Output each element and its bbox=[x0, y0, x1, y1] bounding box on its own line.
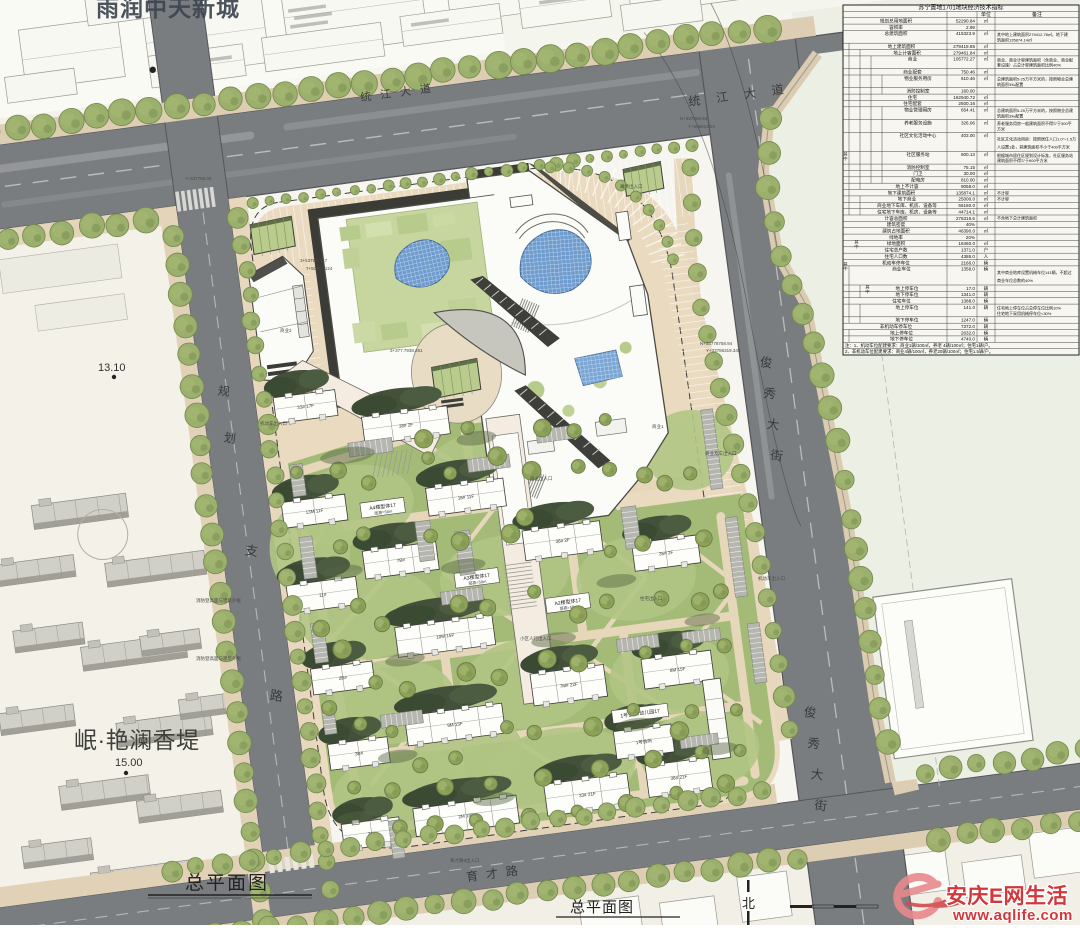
svg-text:18460.0: 18460.0 bbox=[958, 241, 975, 246]
svg-text:路: 路 bbox=[269, 688, 284, 705]
svg-text:住宅配套: 住宅配套 bbox=[903, 100, 922, 107]
svg-text:162940.72: 162940.72 bbox=[953, 95, 975, 100]
svg-text:住宅出入口: 住宅出入口 bbox=[640, 595, 663, 602]
svg-text:辆: 辆 bbox=[984, 323, 989, 330]
svg-text:㎡: ㎡ bbox=[984, 30, 989, 36]
svg-text:40%: 40% bbox=[966, 222, 975, 227]
svg-text:社区文化活动中心: 社区文化活动中心 bbox=[900, 132, 937, 139]
svg-text:㎡: ㎡ bbox=[984, 49, 989, 55]
svg-text:建筑密度: 建筑密度 bbox=[887, 221, 906, 228]
svg-text:消防控制室: 消防控制室 bbox=[907, 164, 930, 171]
svg-text:规: 规 bbox=[217, 383, 231, 399]
svg-text:辆: 辆 bbox=[984, 329, 989, 336]
svg-text:住宅地下采用机械停车位<30%: 住宅地下采用机械停车位<30% bbox=[997, 310, 1052, 316]
svg-text:商业、商业计容建筑面积（含商业、商业配: 商业、商业计容建筑面积（含商业、商业配 bbox=[997, 56, 1073, 62]
svg-text:750.46: 750.46 bbox=[961, 69, 975, 74]
svg-text:9058.0: 9058.0 bbox=[961, 184, 975, 189]
svg-text:其中: 其中 bbox=[844, 262, 849, 272]
svg-text:㎡: ㎡ bbox=[984, 164, 989, 170]
svg-text:105772.27: 105772.27 bbox=[953, 57, 975, 62]
svg-text:7+50862.124: 7+50862.124 bbox=[306, 266, 333, 271]
svg-text:地上建筑面积: 地上建筑面积 bbox=[888, 43, 916, 50]
svg-text:㎡: ㎡ bbox=[984, 75, 989, 81]
svg-text:75.15: 75.15 bbox=[964, 165, 976, 170]
svg-text:2166.0: 2166.0 bbox=[961, 260, 975, 265]
svg-text:商业及车出入口: 商业及车出入口 bbox=[705, 450, 737, 457]
svg-text:地上停车位: 地上停车位 bbox=[896, 304, 919, 311]
svg-text:276316.6: 276316.6 bbox=[956, 216, 976, 221]
svg-text:消防登高面与建筑外框: 消防登高面与建筑外框 bbox=[196, 597, 241, 604]
svg-text:地下停车位: 地下停车位 bbox=[890, 336, 913, 343]
svg-text:不计容: 不计容 bbox=[997, 189, 1009, 195]
svg-text:人: 人 bbox=[984, 254, 989, 259]
svg-text:㎡: ㎡ bbox=[984, 177, 989, 183]
svg-text:地下商业: 地下商业 bbox=[898, 196, 917, 203]
svg-text:机动车出入口: 机动车出入口 bbox=[260, 420, 287, 427]
svg-text:小区人行出入口: 小区人行出入口 bbox=[520, 635, 552, 642]
svg-text:N+33778758.94: N+33778758.94 bbox=[700, 341, 733, 346]
svg-text:11#: 11# bbox=[319, 592, 327, 598]
svg-text:㎡: ㎡ bbox=[984, 183, 989, 189]
svg-text:㎡: ㎡ bbox=[984, 227, 989, 233]
svg-text:7+337766.04: 7+337766.04 bbox=[185, 176, 212, 181]
svg-text:地上计容面积: 地上计容面积 bbox=[893, 49, 921, 56]
svg-text:配电房: 配电房 bbox=[911, 177, 925, 184]
svg-text:2.99: 2.99 bbox=[966, 25, 975, 30]
svg-text:住宅: 住宅 bbox=[908, 94, 918, 100]
svg-text:㎡: ㎡ bbox=[984, 94, 989, 100]
svg-text:㎡: ㎡ bbox=[984, 215, 989, 221]
svg-text:654.41: 654.41 bbox=[961, 108, 975, 113]
svg-text:岷·艳澜香堤: 岷·艳澜香堤 bbox=[74, 727, 200, 753]
svg-text:辆: 辆 bbox=[984, 266, 989, 273]
svg-text:商业: 商业 bbox=[908, 56, 918, 63]
svg-text:商业车位总数的40%: 商业车位总数的40% bbox=[997, 277, 1033, 283]
svg-text:㎡: ㎡ bbox=[984, 43, 989, 49]
svg-text:㎡: ㎡ bbox=[984, 68, 989, 74]
svg-text:绿地面积: 绿地面积 bbox=[887, 240, 906, 247]
svg-text:建筑占地面积: 建筑占地面积 bbox=[882, 227, 910, 234]
svg-text:141.0: 141.0 bbox=[964, 305, 976, 310]
svg-text:13.10: 13.10 bbox=[98, 362, 126, 374]
svg-text:415323.9: 415323.9 bbox=[956, 31, 976, 36]
svg-text:建筑面积不得少于600平方米: 建筑面积不得少于600平方米 bbox=[997, 157, 1048, 163]
svg-text:商业配套: 商业配套 bbox=[903, 68, 922, 75]
svg-text:不含地下总计建筑面积: 不含地下总计建筑面积 bbox=[997, 215, 1037, 221]
svg-text:279461.84: 279461.84 bbox=[953, 50, 975, 55]
svg-text:600.13: 600.13 bbox=[961, 152, 975, 157]
svg-text:25000.0: 25000.0 bbox=[958, 197, 975, 202]
svg-text:大: 大 bbox=[766, 417, 780, 433]
svg-text:46390.0: 46390.0 bbox=[958, 228, 975, 233]
svg-text:地下停车位: 地下停车位 bbox=[896, 291, 919, 298]
svg-text:1358.0: 1358.0 bbox=[961, 267, 975, 272]
svg-text:㎡: ㎡ bbox=[984, 100, 989, 106]
svg-text:52290.84: 52290.84 bbox=[956, 18, 976, 23]
svg-text:㎡: ㎡ bbox=[984, 240, 989, 246]
svg-text:注：1、机动车位配建要求：商业1辆/100㎡，养老 4辆/1: 注：1、机动车位配建要求：商业1辆/100㎡，养老 4辆/100㎡；住宅1辆/户… bbox=[845, 342, 993, 349]
svg-text:方米: 方米 bbox=[997, 125, 1005, 131]
svg-text:Y+33786319.345: Y+33786319.345 bbox=[706, 348, 741, 353]
svg-text:住宅地上停车位占总停车位比例10%: 住宅地上停车位占总停车位比例10% bbox=[997, 305, 1061, 311]
svg-text:3+5378N.417: 3+5378N.417 bbox=[300, 258, 328, 263]
svg-text:规划总用地面积: 规划总用地面积 bbox=[880, 17, 913, 24]
svg-text:其中地上建筑面积279412.78㎡，地下建: 其中地上建筑面积279412.78㎡，地下建 bbox=[997, 31, 1068, 37]
svg-text:其中商业地库设置机械车位141辆，不超过: 其中商业地库设置机械车位141辆，不超过 bbox=[997, 269, 1072, 275]
svg-text:7372.0: 7372.0 bbox=[961, 324, 975, 329]
svg-text:消防控制室: 消防控制室 bbox=[907, 87, 930, 94]
svg-text:商业车位: 商业车位 bbox=[892, 266, 911, 273]
svg-text:地上停车位: 地上停车位 bbox=[896, 285, 919, 292]
svg-text:总平面图: 总平面图 bbox=[570, 899, 634, 916]
svg-text:消防登高面与建筑外框: 消防登高面与建筑外框 bbox=[196, 655, 241, 662]
svg-text:1247.0: 1247.0 bbox=[961, 318, 975, 323]
svg-text:㎡: ㎡ bbox=[984, 56, 989, 62]
svg-text:N+337869.94: N+337869.94 bbox=[680, 116, 708, 121]
svg-text:筑面积135874.14㎡: 筑面积135874.14㎡ bbox=[997, 36, 1032, 42]
svg-text:㎡: ㎡ bbox=[984, 119, 989, 125]
svg-text:商业1: 商业1 bbox=[652, 423, 664, 430]
svg-text:326.06: 326.06 bbox=[961, 120, 975, 125]
svg-text:1371.0: 1371.0 bbox=[961, 248, 975, 253]
svg-text:商业地下车库、机房、设备等: 商业地下车库、机房、设备等 bbox=[877, 202, 937, 209]
svg-text:街: 街 bbox=[813, 798, 827, 814]
svg-text:育才路8出入口: 育才路8出入口 bbox=[450, 857, 480, 864]
svg-text:社区文化活动用房：按照居住人口1.0～1.5万: 社区文化活动用房：按照居住人口1.0～1.5万 bbox=[997, 135, 1076, 141]
svg-text:门卫: 门卫 bbox=[913, 170, 923, 177]
svg-text:66160.0: 66160.0 bbox=[958, 203, 975, 208]
svg-text:403.00: 403.00 bbox=[961, 133, 975, 138]
svg-text:筑面积3‰配置: 筑面积3‰配置 bbox=[997, 113, 1023, 119]
svg-text:绿地率: 绿地率 bbox=[889, 234, 903, 241]
svg-text:户: 户 bbox=[984, 247, 988, 254]
svg-text:根据城市居住区规划设计标准，社区服务站: 根据城市居住区规划设计标准，社区服务站 bbox=[997, 152, 1073, 158]
svg-text:地下停车位: 地下停车位 bbox=[896, 317, 919, 324]
svg-text:www.aqlife.com: www.aqlife.com bbox=[952, 907, 1073, 924]
svg-text:地上不计容: 地上不计容 bbox=[896, 183, 919, 190]
svg-text:30.00: 30.00 bbox=[964, 171, 976, 176]
svg-text:机动车出入口: 机动车出入口 bbox=[758, 575, 785, 582]
svg-text:备注: 备注 bbox=[1032, 11, 1042, 18]
svg-text:物业服务用房: 物业服务用房 bbox=[904, 75, 932, 82]
svg-text:44714.1: 44714.1 bbox=[958, 209, 975, 214]
svg-text:3+377.7938.261: 3+377.7938.261 bbox=[390, 348, 423, 353]
svg-text:㎡: ㎡ bbox=[984, 17, 989, 23]
svg-text:总建筑面积5-25万平方米的，按照物业总建: 总建筑面积5-25万平方米的，按照物业总建 bbox=[997, 107, 1073, 113]
svg-text:筑面积3‰配置: 筑面积3‰配置 bbox=[997, 81, 1023, 87]
svg-text:㎡: ㎡ bbox=[984, 208, 989, 214]
svg-text:辆: 辆 bbox=[984, 291, 989, 298]
svg-text:套设施）占总计容建筑面积比例40%: 套设施）占总计容建筑面积比例40% bbox=[997, 62, 1061, 68]
svg-text:计容总面积: 计容总面积 bbox=[885, 215, 908, 222]
svg-text:总建筑面积5-25万平方米的，按照物业总建: 总建筑面积5-25万平方米的，按照物业总建 bbox=[997, 75, 1073, 81]
svg-text:㎡: ㎡ bbox=[984, 107, 989, 113]
svg-text:街: 街 bbox=[769, 448, 783, 464]
svg-text:容积率: 容积率 bbox=[889, 24, 903, 31]
svg-text:商业2: 商业2 bbox=[280, 327, 292, 334]
svg-text:住宅总户数: 住宅总户数 bbox=[885, 247, 908, 254]
svg-text:养老服务用房一般建筑面积不得少于300平: 养老服务用房一般建筑面积不得少于300平 bbox=[997, 120, 1072, 126]
svg-text:其中: 其中 bbox=[855, 240, 860, 250]
svg-text:4740.0: 4740.0 bbox=[961, 337, 975, 342]
svg-text:辆: 辆 bbox=[984, 297, 989, 304]
svg-text:不计容: 不计容 bbox=[997, 196, 1009, 202]
svg-text:2632.0: 2632.0 bbox=[961, 330, 975, 335]
svg-text:4386.0: 4386.0 bbox=[961, 254, 975, 259]
svg-text:雨润中天新城: 雨润中天新城 bbox=[96, 0, 240, 21]
svg-text:地上停车位: 地上停车位 bbox=[890, 329, 913, 336]
svg-text:㎡: ㎡ bbox=[984, 170, 989, 176]
svg-text:17.0: 17.0 bbox=[966, 286, 975, 291]
svg-text:人设置1处，其建筑面积不小于400平方米: 人设置1处，其建筑面积不小于400平方米 bbox=[997, 144, 1070, 150]
svg-text:2500.16: 2500.16 bbox=[958, 101, 975, 106]
svg-text:地下建筑面积: 地下建筑面积 bbox=[888, 189, 916, 196]
svg-text:辆: 辆 bbox=[984, 285, 989, 292]
svg-text:养老服务设施: 养老服务设施 bbox=[904, 119, 932, 126]
svg-text:物业管理用房: 物业管理用房 bbox=[904, 107, 932, 114]
svg-text:辆: 辆 bbox=[984, 304, 989, 311]
svg-text:辆: 辆 bbox=[984, 317, 989, 324]
svg-text:㎡: ㎡ bbox=[984, 132, 989, 138]
svg-text:辆: 辆 bbox=[984, 336, 989, 343]
svg-text:北: 北 bbox=[742, 896, 755, 911]
svg-text:1341.0: 1341.0 bbox=[961, 292, 975, 297]
svg-text:单位: 单位 bbox=[981, 11, 991, 18]
svg-text:160.00: 160.00 bbox=[961, 88, 975, 93]
svg-text:279419.85: 279419.85 bbox=[953, 44, 975, 49]
svg-text:辆: 辆 bbox=[984, 259, 989, 266]
svg-text:商业出入口: 商业出入口 bbox=[530, 475, 553, 482]
svg-text:社区服务站: 社区服务站 bbox=[907, 151, 930, 158]
svg-text:俊: 俊 bbox=[759, 354, 773, 371]
svg-text:总平面图: 总平面图 bbox=[185, 872, 269, 894]
svg-text:2、非机动车位配建要求：商业4辆/100㎡，养老20辆/10: 2、非机动车位配建要求：商业4辆/100㎡，养老20辆/100㎡；住宅1.5辆/… bbox=[845, 348, 993, 355]
svg-text:俊: 俊 bbox=[803, 704, 817, 721]
svg-text:秀: 秀 bbox=[806, 736, 821, 752]
svg-text:Y+508813.04: Y+508813.04 bbox=[688, 124, 715, 129]
svg-text:㎡: ㎡ bbox=[984, 196, 989, 202]
svg-text:大: 大 bbox=[810, 767, 824, 783]
svg-text:住宅车位: 住宅车位 bbox=[892, 297, 911, 304]
svg-text:㎡: ㎡ bbox=[984, 151, 989, 157]
svg-text:苏宁置地1701地块经济技术指标: 苏宁置地1701地块经济技术指标 bbox=[918, 4, 1003, 12]
svg-text:20%: 20% bbox=[966, 235, 975, 240]
svg-text:其中: 其中 bbox=[844, 152, 849, 162]
svg-text:135874.1: 135874.1 bbox=[956, 190, 976, 195]
svg-text:划: 划 bbox=[223, 431, 237, 446]
svg-text:610.46: 610.46 bbox=[961, 76, 975, 81]
svg-text:支: 支 bbox=[244, 543, 259, 560]
svg-text:㎡: ㎡ bbox=[984, 189, 989, 195]
svg-text:安庆E网生活: 安庆E网生活 bbox=[946, 884, 1068, 908]
svg-text:机动车停车位: 机动车停车位 bbox=[882, 259, 910, 266]
svg-text:非机动车停车位: 非机动车停车位 bbox=[880, 323, 913, 330]
svg-text:商场出入口: 商场出入口 bbox=[620, 183, 643, 190]
svg-text:住宅地下车库、机房、设备等: 住宅地下车库、机房、设备等 bbox=[877, 208, 937, 215]
svg-text:住宅人口数: 住宅人口数 bbox=[885, 253, 908, 260]
svg-text:㎡: ㎡ bbox=[984, 202, 989, 208]
svg-text:总建筑面积: 总建筑面积 bbox=[885, 30, 908, 37]
svg-text:1388.0: 1388.0 bbox=[961, 298, 975, 303]
svg-text:810.00: 810.00 bbox=[961, 178, 975, 183]
svg-text:其中: 其中 bbox=[866, 285, 871, 295]
svg-text:秀: 秀 bbox=[762, 386, 777, 402]
svg-text:15.00: 15.00 bbox=[115, 757, 143, 769]
